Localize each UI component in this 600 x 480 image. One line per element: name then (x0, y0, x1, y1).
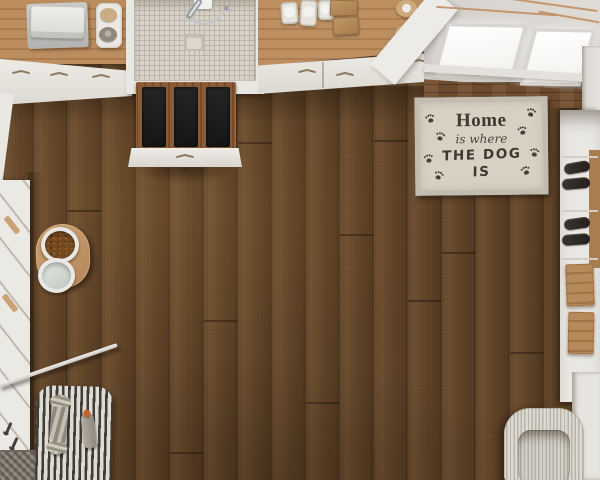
rope-knot (46, 442, 68, 454)
scene: Home is where THE DOG IS (0, 0, 600, 480)
woven-basket (0, 450, 38, 480)
chew-toy-orange-tip (83, 409, 91, 418)
wood-drawer-box (568, 312, 595, 354)
bench-black-cushion (174, 87, 198, 147)
rope-knot (50, 396, 72, 408)
drawer-handle (298, 67, 316, 74)
dog-welcome-mat: Home is where THE DOG IS (414, 96, 548, 195)
floor-plank-seam (306, 402, 340, 404)
shelf-divider (562, 258, 598, 260)
bench-black-cushion (142, 87, 166, 147)
shelf-divider (562, 156, 598, 158)
mat-text-block: Home is where THE DOG IS (420, 101, 544, 190)
shoe (562, 233, 591, 246)
drawer-handle (50, 70, 68, 77)
wall-bench (128, 80, 242, 178)
drawer-handle (336, 70, 354, 77)
drawer-seam (322, 62, 324, 88)
rope-bone-toy (48, 394, 70, 455)
floor-plank-seam (238, 142, 272, 144)
shoe (563, 160, 591, 175)
floor-plank-seam (442, 252, 476, 254)
mat-line-the-dog-is: THE DOG IS (434, 145, 529, 183)
kraft-box (330, 0, 359, 16)
leash-hook (10, 437, 18, 450)
drawer-handle (176, 152, 194, 159)
storage-canister (280, 1, 298, 24)
shelf-wood-slat (1, 293, 18, 312)
chew-toy (80, 413, 96, 449)
shower-drain (184, 34, 204, 51)
storage-canister (299, 0, 317, 26)
drawer-handle (92, 72, 110, 79)
mat-line-is-where: is where (455, 132, 507, 147)
shoe-shelf (560, 110, 600, 402)
leash-hook (4, 422, 12, 435)
floor-plank-seam (340, 234, 374, 236)
shelf-divider (562, 210, 598, 212)
mat-line-home: Home (456, 111, 507, 132)
drawer-handle (12, 68, 30, 75)
bench-wood-frame (136, 82, 236, 152)
ribbed-pet-bed (504, 408, 584, 480)
hand-shower-icon (168, 0, 232, 30)
shoe (562, 177, 591, 190)
floor-plank-seam (408, 300, 442, 302)
wood-drawer-box (565, 264, 594, 307)
water-bowl (38, 258, 75, 293)
floor-plank-seam (204, 320, 238, 322)
left-storage-shelf (0, 180, 30, 480)
pet-bed-cushion (518, 430, 570, 480)
kraft-box (333, 16, 360, 35)
floor-plank-seam (170, 452, 204, 454)
shelf-wood-slat (3, 215, 20, 234)
floor-plank-seam (68, 210, 102, 212)
striped-pet-mat (35, 385, 113, 480)
soap-ball (99, 27, 117, 42)
dog-bowl-station (34, 222, 94, 294)
soap-bar (100, 8, 117, 22)
folded-towel-white (31, 6, 85, 38)
shelf-wood-side-panel (589, 150, 600, 268)
shoe (563, 216, 590, 231)
bench-black-cushion (206, 87, 230, 147)
bench-drawer (128, 148, 242, 167)
floor-plank-seam (374, 140, 408, 142)
